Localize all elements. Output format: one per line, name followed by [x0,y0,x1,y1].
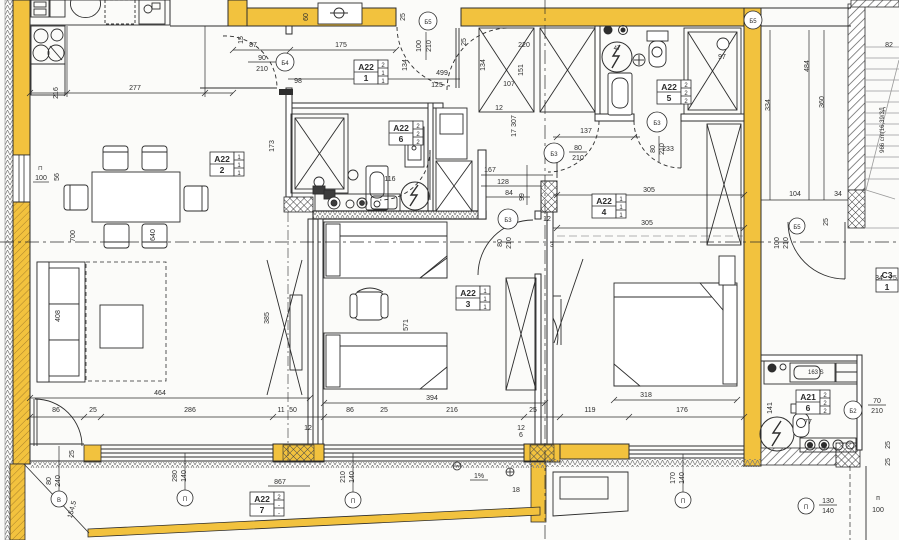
svg-text:210: 210 [340,471,347,483]
svg-text:П: П [681,499,685,505]
svg-text:Б5: Б5 [793,225,801,231]
svg-text:240: 240 [55,475,62,487]
svg-text:56: 56 [54,173,61,181]
svg-text:140: 140 [822,508,834,515]
svg-text:A22: A22 [596,196,612,206]
svg-text:277: 277 [129,85,141,92]
svg-text:25: 25 [380,407,388,414]
svg-text:137: 137 [580,128,592,135]
svg-text:6: 6 [399,134,404,144]
svg-text:1%: 1% [474,473,484,480]
svg-text:134: 134 [480,59,487,71]
svg-text:1: 1 [885,282,890,292]
svg-text:A22: A22 [460,288,476,298]
svg-text:170: 170 [670,472,677,484]
svg-text:34: 34 [834,191,842,198]
svg-text:86: 86 [52,407,60,414]
svg-text:12: 12 [304,425,312,432]
svg-text:6: 6 [519,432,523,439]
svg-text:128: 128 [497,179,509,186]
svg-text:25: 25 [885,458,892,466]
svg-text:167: 167 [484,167,496,174]
svg-text:Б3: Б3 [550,152,558,158]
svg-text:3: 3 [550,242,554,249]
svg-text:97: 97 [718,54,726,61]
svg-text:286: 286 [184,407,196,414]
svg-text:5: 5 [667,93,672,103]
svg-text:210: 210 [256,66,268,73]
svg-text:⊓: ⊓ [38,166,43,172]
svg-text:220: 220 [518,42,530,49]
svg-text:4: 4 [602,207,607,217]
svg-text:70: 70 [873,398,881,405]
svg-text:77: 77 [804,419,812,426]
svg-text:П: П [351,499,355,505]
svg-text:175: 175 [335,42,347,49]
svg-text:25: 25 [461,38,468,46]
svg-text:84: 84 [505,190,513,197]
svg-text:80: 80 [650,145,657,153]
svg-text:Б5: Б5 [424,20,432,26]
svg-text:307: 307 [511,115,518,127]
svg-text:34: 34 [875,275,883,282]
svg-text:82: 82 [885,42,893,49]
svg-text:25: 25 [885,441,892,449]
svg-text:80: 80 [46,477,53,485]
svg-text:140: 140 [679,472,686,484]
svg-text:60: 60 [303,13,310,21]
svg-text:A22: A22 [214,154,230,164]
svg-text:216: 216 [446,407,458,414]
svg-text:360: 360 [819,96,826,108]
svg-text:3: 3 [466,299,471,309]
svg-text:87: 87 [249,42,257,49]
svg-text:100: 100 [35,175,47,182]
svg-text:385: 385 [264,312,271,324]
svg-text:-: - [278,503,280,509]
svg-text:464: 464 [154,390,166,397]
svg-text:Б5: Б5 [749,19,757,25]
svg-text:80: 80 [574,145,582,152]
svg-text:100: 100 [416,40,423,52]
svg-text:25: 25 [400,13,407,21]
svg-text:408: 408 [55,310,62,322]
svg-text:305: 305 [641,220,653,227]
svg-text:12: 12 [543,216,551,223]
svg-text:141: 141 [767,402,774,414]
svg-text:Б2: Б2 [849,409,857,415]
svg-text:173: 173 [269,140,276,152]
svg-text:966 cm(16,39/3Д: 966 cm(16,39/3Д [880,107,886,153]
svg-text:163 S: 163 S [808,370,824,376]
svg-text:A22: A22 [358,62,374,72]
svg-text:12: 12 [517,425,525,432]
svg-text:210: 210 [783,237,790,249]
svg-text:394: 394 [426,395,438,402]
svg-text:1: 1 [364,73,369,83]
svg-text:25: 25 [69,450,76,458]
svg-text:210: 210 [871,408,883,415]
svg-text:A22: A22 [254,494,270,504]
svg-text:210: 210 [426,40,433,52]
svg-text:11: 11 [277,407,284,414]
svg-text:П: П [804,505,808,511]
svg-text:176: 176 [676,407,688,414]
svg-text:Б3: Б3 [653,121,661,127]
svg-text:50: 50 [289,407,297,414]
svg-text:104: 104 [789,191,801,198]
svg-text:2: 2 [220,165,225,175]
svg-text:210: 210 [659,143,666,155]
svg-text:100: 100 [872,507,884,514]
svg-text:Б3: Б3 [504,218,512,224]
svg-text:134: 134 [402,59,409,71]
svg-text:151: 151 [518,64,525,76]
svg-text:25: 25 [89,407,97,414]
svg-text:484: 484 [804,60,811,72]
svg-text:210: 210 [506,237,513,249]
svg-text:25: 25 [529,407,537,414]
svg-text:305: 305 [643,187,655,194]
svg-text:18: 18 [512,487,520,494]
svg-text:700: 700 [70,230,77,242]
svg-text:318: 318 [640,392,652,399]
svg-text:216: 216 [53,87,60,99]
svg-text:12: 12 [495,105,503,112]
svg-text:499: 499 [436,70,448,77]
svg-text:A22: A22 [393,123,409,133]
svg-text:125: 125 [431,82,443,89]
svg-text:15: 15 [238,36,245,44]
svg-text:6: 6 [806,403,811,413]
svg-text:210: 210 [572,155,584,162]
svg-text:25: 25 [889,275,897,282]
svg-text:334: 334 [765,99,772,111]
svg-text:-: - [278,511,280,517]
svg-text:A22: A22 [661,82,677,92]
svg-text:140: 140 [181,470,188,482]
svg-text:99: 99 [519,193,526,201]
svg-text:Б4: Б4 [281,61,289,67]
svg-text:116: 116 [384,176,395,183]
svg-text:640: 640 [150,229,157,241]
svg-text:867: 867 [274,479,286,486]
svg-text:100: 100 [774,237,781,249]
svg-text:130: 130 [822,498,834,505]
svg-text:571: 571 [403,319,410,331]
svg-text:П: П [183,497,187,503]
svg-text:119: 119 [584,407,595,414]
svg-text:86: 86 [346,407,354,414]
svg-text:90: 90 [258,55,266,62]
svg-text:В: В [57,498,61,504]
svg-text:7: 7 [260,505,265,515]
svg-text:A21: A21 [800,392,816,402]
svg-text:140: 140 [349,471,356,483]
svg-text:107: 107 [503,81,515,88]
svg-text:25: 25 [823,218,830,226]
svg-text:280: 280 [172,470,179,482]
svg-text:17: 17 [511,129,518,137]
svg-text:п: п [876,495,880,502]
svg-text:80: 80 [497,239,504,247]
